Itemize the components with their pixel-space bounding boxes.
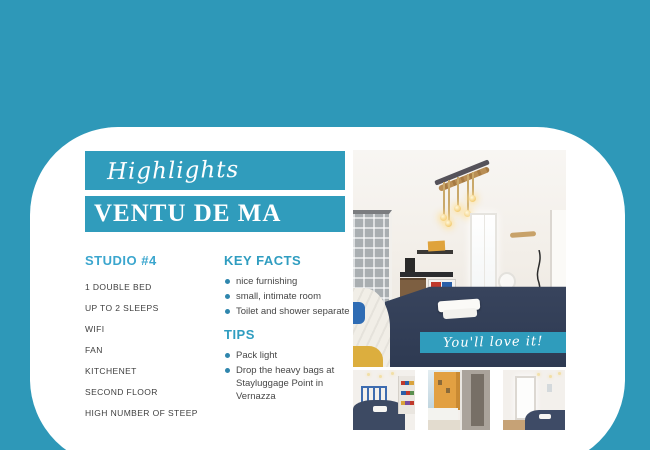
tips-heading: TIPS	[224, 327, 350, 342]
amenities-column: STUDIO #4 1 DOUBLE BED UP TO 2 SLEEPS WI…	[85, 253, 225, 424]
building-window	[446, 388, 450, 393]
ceiling-light-icon	[537, 373, 540, 376]
thumbnail-photo-balcony	[428, 370, 490, 430]
bullet-icon	[225, 279, 230, 284]
key-facts-heading: KEY FACTS	[224, 253, 350, 268]
key-fact-item: Toilet and shower separate	[224, 305, 350, 318]
thumbnail-photo-bedroom	[353, 370, 415, 430]
light-rope	[443, 182, 445, 215]
ceiling-light-icon	[549, 375, 552, 378]
amenity-item: FAN	[85, 340, 225, 361]
blue-pillow	[353, 302, 365, 324]
amenity-item: KITCHENET	[85, 361, 225, 382]
thumbnail-photo-room	[503, 370, 565, 430]
ceiling-light-icon	[367, 373, 370, 376]
amenity-item: HIGH NUMBER OF STEEP	[85, 403, 225, 424]
light-rope	[457, 177, 459, 206]
coat-rack	[510, 231, 536, 238]
ceiling-light-icon	[558, 372, 561, 375]
pendant-bulb	[445, 220, 452, 227]
tip-item: Drop the heavy bags at Stayluggage Point…	[224, 364, 350, 403]
window	[470, 213, 497, 297]
shelf-box	[428, 241, 446, 252]
light-rope	[472, 172, 474, 196]
tip-item: Pack light	[224, 349, 350, 362]
shelf-items	[401, 401, 414, 405]
yellow-building	[434, 372, 460, 410]
wall-frame	[547, 384, 552, 392]
key-fact-item: small, intimate room	[224, 290, 350, 303]
light-rope	[467, 174, 469, 211]
photo-caption-banner: You'll love it!	[420, 332, 566, 353]
terrace-railing	[428, 408, 458, 420]
facts-column: KEY FACTS nice furnishing small, intimat…	[224, 253, 350, 405]
yellow-throw	[353, 346, 383, 367]
tip-text: Drop the heavy bags at Stayluggage Point…	[236, 364, 350, 403]
shelf-unit	[398, 376, 415, 414]
folded-towel	[539, 414, 551, 419]
key-fact-text: Toilet and shower separate	[236, 305, 350, 318]
bullet-icon	[225, 353, 230, 358]
pendant-bulb	[469, 195, 476, 202]
building-window	[438, 380, 442, 385]
bullet-icon	[225, 368, 230, 373]
amenity-item: SECOND FLOOR	[85, 382, 225, 403]
amenity-item: UP TO 2 SLEEPS	[85, 298, 225, 319]
open-door	[471, 374, 484, 426]
coffee-machine	[405, 258, 415, 272]
ceiling-light-icon	[391, 372, 394, 375]
main-photo: You'll love it!	[353, 150, 566, 367]
highlights-label: Highlights	[107, 156, 240, 184]
bed	[525, 410, 565, 430]
page-background: Highlights VENTU DE MA STUDIO #4 1 DOUBL…	[0, 0, 650, 450]
page-title: VENTU DE MA	[94, 200, 281, 228]
bullet-icon	[225, 309, 230, 314]
key-facts-list: nice furnishing small, intimate room Toi…	[224, 275, 350, 318]
ceiling-light-icon	[379, 375, 382, 378]
bullet-icon	[225, 294, 230, 299]
highlights-banner: Highlights	[85, 151, 345, 190]
folded-towel	[373, 406, 387, 412]
amenity-item: 1 DOUBLE BED	[85, 277, 225, 298]
amenity-item: WIFI	[85, 319, 225, 340]
light-rope	[448, 180, 450, 221]
pendant-bulb	[454, 205, 461, 212]
shelf-items	[401, 381, 414, 385]
balcony-door-frame	[460, 370, 490, 430]
flyer-card: Highlights VENTU DE MA STUDIO #4 1 DOUBL…	[30, 127, 625, 467]
shelf-items	[401, 391, 414, 395]
photo-caption: You'll love it!	[443, 334, 544, 351]
title-banner: VENTU DE MA	[85, 196, 345, 232]
tip-text: Pack light	[236, 349, 277, 362]
wood-floor	[503, 420, 525, 430]
tips-list: Pack light Drop the heavy bags at Staylu…	[224, 349, 350, 403]
key-fact-item: nice furnishing	[224, 275, 350, 288]
key-fact-text: nice furnishing	[236, 275, 297, 288]
kitchen-counter	[400, 272, 453, 277]
floor	[428, 420, 460, 430]
key-fact-text: small, intimate room	[236, 290, 321, 303]
studio-heading: STUDIO #4	[85, 253, 225, 268]
